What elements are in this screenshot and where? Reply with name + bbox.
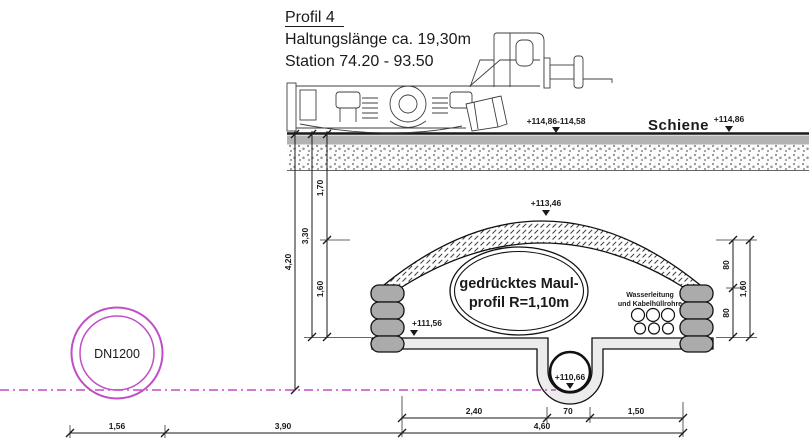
maulprofil-label-line2: profil R=1,10m	[469, 295, 569, 311]
bench-elevation: +111,56	[412, 318, 442, 328]
dim-label-460: 4,60	[534, 421, 551, 431]
rail-elevation-right: +114,86	[714, 114, 745, 124]
profile-title: Profil 4	[285, 9, 335, 26]
dim-label-80-top: 80	[721, 260, 731, 270]
level-marker-icon	[542, 210, 550, 216]
track-structure: Schiene +114,86-114,58 +114,86	[287, 114, 809, 171]
block-stack-right	[680, 285, 713, 352]
level-marker-icon	[410, 330, 418, 336]
dim-label-240: 2,40	[466, 406, 483, 416]
dim-label-330: 3,30	[300, 227, 310, 244]
dim-label-170: 1,70	[315, 179, 325, 196]
dimension-ticks	[66, 414, 687, 437]
dim-label-150: 1,50	[628, 406, 645, 416]
station-range-label: Station 74.20 - 93.50	[285, 53, 434, 70]
dim-label-70: 70	[563, 406, 573, 416]
title-block: Profil 4 Haltungslänge ca. 19,30m Statio…	[285, 9, 471, 70]
technical-drawing-canvas: Profil 4 Haltungslänge ca. 19,30m Statio…	[0, 0, 809, 448]
block-stack-left	[371, 285, 404, 352]
invert-elevation: +110,66	[555, 372, 586, 382]
rail-bed-band	[287, 136, 809, 145]
profile-drawing-svg: Profil 4 Haltungslänge ca. 19,30m Statio…	[0, 0, 809, 448]
rail-label: Schiene	[648, 117, 709, 134]
dim-label-390: 3,90	[275, 421, 292, 431]
duct-circles-icon	[632, 309, 675, 335]
dim-label-160: 1,60	[315, 280, 325, 297]
bench-and-channel	[372, 338, 713, 404]
dn1200-pipe: DN1200	[72, 308, 163, 399]
level-marker-icon	[552, 127, 560, 133]
utilities-label-line1: Wasserleitung	[626, 292, 674, 299]
dim-label-160-right: 1,60	[738, 280, 748, 297]
dim-label-420: 4,20	[283, 253, 293, 270]
dimension-group-bottom: 2,40 70 1,50 1,56 3,90 4,60	[66, 396, 687, 438]
holding-length-label: Haltungslänge ca. 19,30m	[285, 31, 471, 48]
dim-label-156: 1,56	[109, 421, 126, 431]
maulprofil-label-line1: gedrücktes Maul-	[459, 276, 578, 292]
utility-ducts: Wasserleitung und Kabelhüllrohre	[618, 292, 682, 334]
dimension-group-right: 80 1,60 80	[716, 236, 757, 341]
crown-elevation: +113,46	[531, 198, 562, 208]
level-marker-icon	[725, 126, 733, 132]
tunnel-section: +113,46 gedrücktes Maul- profil R=1,10m …	[371, 198, 713, 404]
utilities-label-line2: und Kabelhüllrohre	[618, 301, 682, 308]
dn1200-label: DN1200	[94, 347, 140, 361]
ballast-gravel-band	[287, 145, 809, 171]
rail-elevation-left: +114,86-114,58	[527, 116, 586, 126]
dim-label-80-bottom: 80	[721, 308, 731, 318]
